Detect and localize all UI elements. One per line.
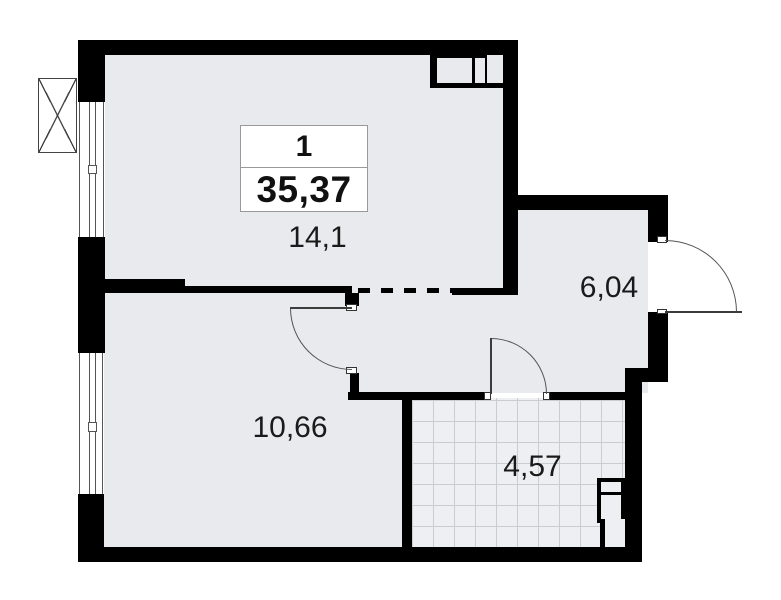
wall-right-step <box>625 368 668 382</box>
unit-info-box: 1 35,37 <box>240 125 368 212</box>
wall-bedroom-bathroom <box>402 398 412 547</box>
wall-top <box>78 40 518 55</box>
shaft-stem-fill <box>604 519 625 547</box>
wall-right-living <box>503 40 518 295</box>
crossed-box-unit <box>38 78 77 153</box>
bathroom-door-leaf <box>490 338 492 394</box>
unit-number: 1 <box>241 126 367 168</box>
wall-hall-top <box>515 195 668 210</box>
wall-bedroom-hall-stub-bottom <box>350 373 359 393</box>
bedroom-window <box>78 353 104 494</box>
ventilation-block-inset <box>437 58 472 83</box>
wall-bottom <box>78 547 642 562</box>
wall-bathroom-top-left <box>348 392 491 400</box>
wall-living-bedroom-thick <box>105 279 185 293</box>
living-room-window <box>78 102 105 237</box>
window-divider <box>88 165 97 174</box>
window-line <box>102 353 103 494</box>
wall-bathroom-top-right <box>543 392 625 400</box>
wall-living-bedroom-thin <box>185 286 352 293</box>
window-divider <box>88 422 97 432</box>
wall-right-lower <box>625 382 642 562</box>
shaft-divider <box>601 492 621 495</box>
ventilation-block-inset <box>475 58 485 83</box>
shaft-stem <box>600 519 605 547</box>
dashed-partition <box>358 288 453 293</box>
living-room-area-label: 14,1 <box>245 217 390 259</box>
floor-plan: 1 35,37 14,1 6,04 10,66 4,57 <box>0 0 781 600</box>
bedroom-area-label: 10,66 <box>215 407 365 449</box>
window-line <box>79 102 80 237</box>
unit-total-area: 35,37 <box>241 168 367 211</box>
plumbing-shaft <box>597 478 625 523</box>
window-line <box>79 353 80 494</box>
entrance-door-leaf <box>665 311 742 313</box>
window-line <box>103 102 104 237</box>
wall-left-middle <box>78 237 105 353</box>
hallway-area-label: 6,04 <box>558 268 660 308</box>
wall-living-hall-stub <box>452 288 517 295</box>
bathroom-area-label: 4,57 <box>480 447 585 487</box>
wall-left-upper <box>78 40 105 102</box>
bedroom-door-leaf <box>290 307 352 309</box>
entrance-door-arc <box>665 240 737 312</box>
